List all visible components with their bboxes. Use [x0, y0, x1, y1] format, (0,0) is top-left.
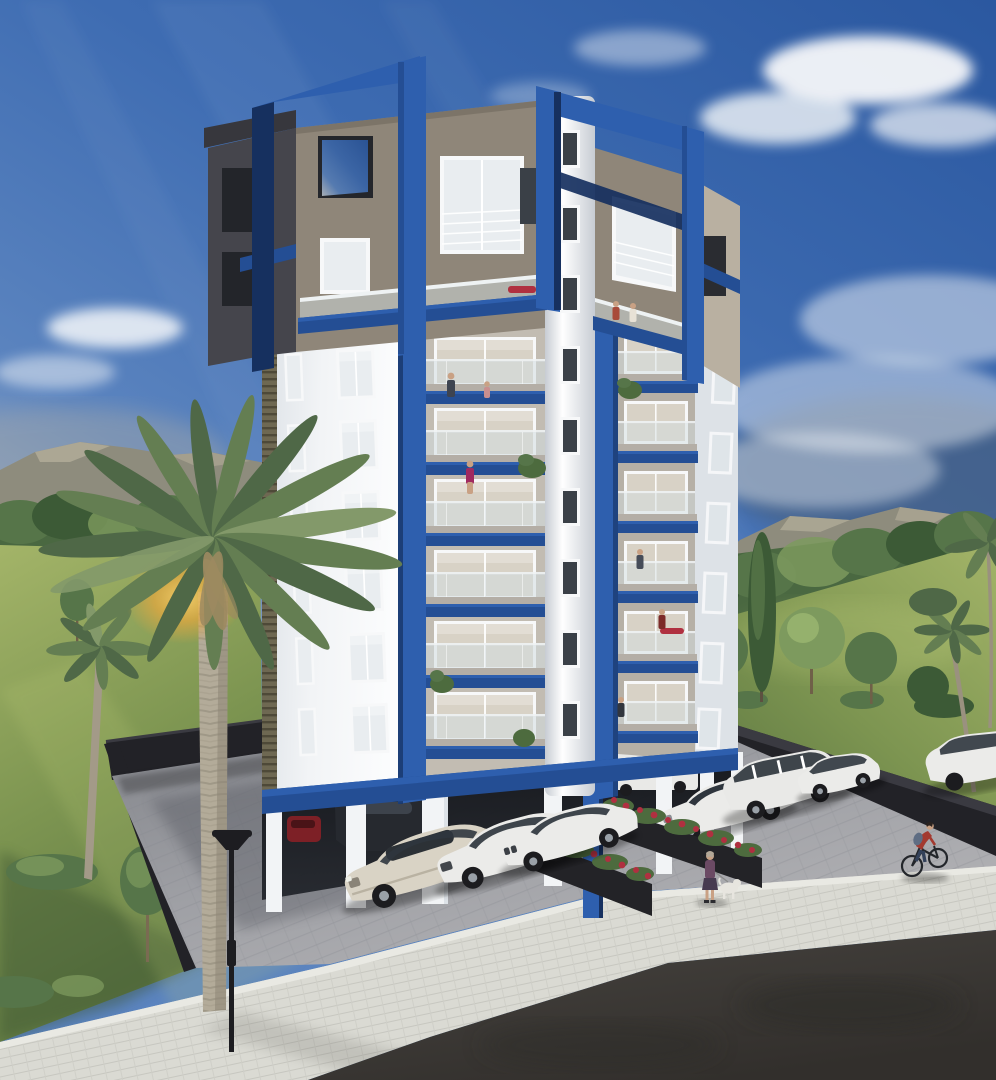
render-canvas	[0, 0, 996, 1080]
apartment-tower	[204, 56, 740, 814]
juliet-window-top	[440, 156, 524, 254]
garage-car-red	[287, 816, 321, 842]
palm-crown-distant	[909, 588, 957, 616]
scene	[0, 0, 996, 1080]
flower-box	[508, 286, 536, 293]
